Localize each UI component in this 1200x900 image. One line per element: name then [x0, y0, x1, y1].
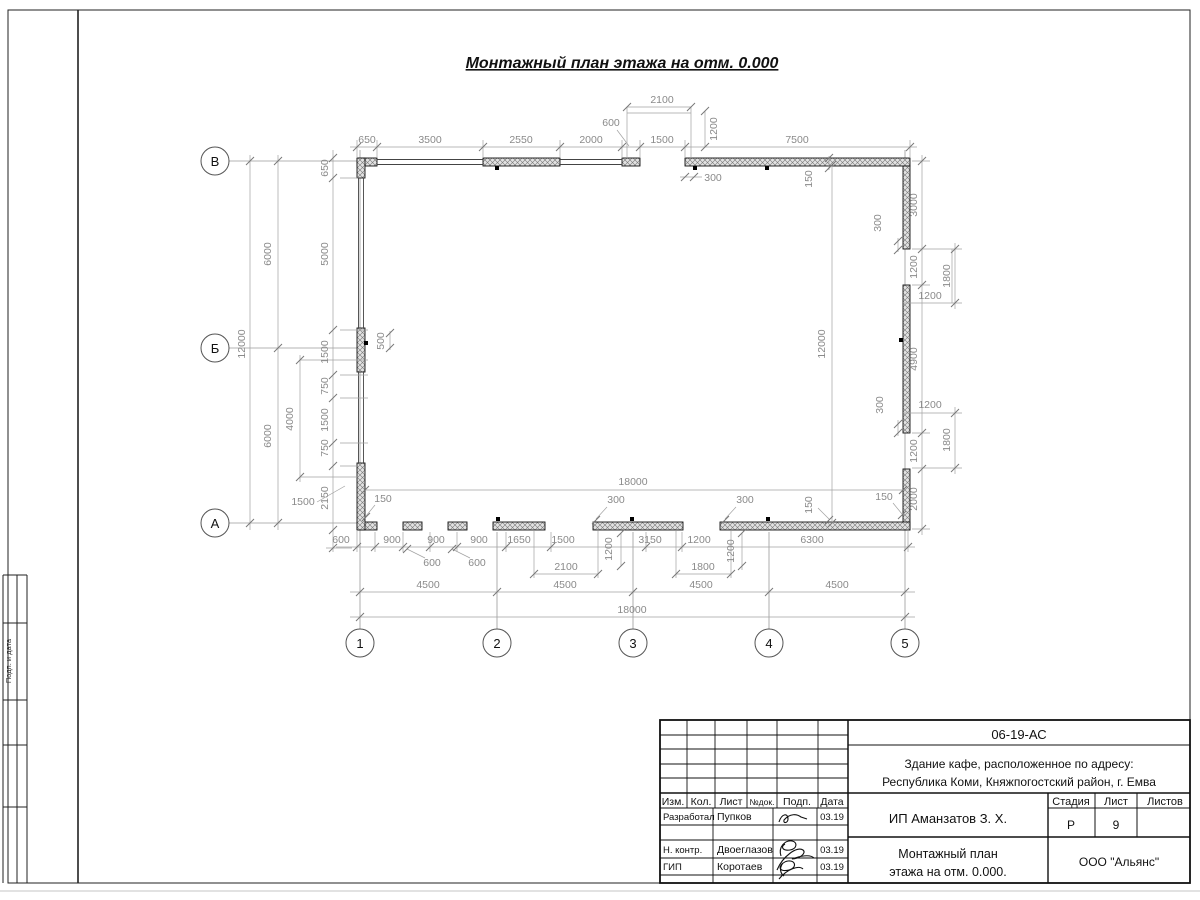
axis-row-label: В	[211, 154, 220, 169]
dim-label: 18000	[618, 476, 647, 488]
dim-label: 6000	[262, 424, 274, 448]
drawing-title: Монтажный план этажа на отм. 0.000	[466, 55, 779, 72]
dim-label: 150	[803, 496, 815, 514]
dim-label: 1500	[551, 534, 575, 546]
object-address-line2: Республика Коми, Княжпогостский район, г…	[882, 775, 1156, 789]
sheet-title-line2: этажа на отм. 0.000.	[889, 865, 1006, 879]
dim-label: 1500	[650, 134, 674, 146]
stage-label: Стадия	[1052, 796, 1090, 808]
dim-label: 3000	[908, 193, 920, 217]
dim-label: 300	[704, 172, 722, 184]
dim-label: 150	[875, 491, 893, 503]
dim-label: 600	[332, 534, 350, 546]
axis-col-label: 5	[901, 636, 908, 651]
dim-label: 18000	[617, 604, 646, 616]
signer-name: Двоеглазов	[717, 844, 773, 856]
sheet-label: Лист	[1104, 796, 1128, 808]
dim-label: 1200	[908, 439, 920, 463]
axis-row-label: Б	[211, 341, 220, 356]
signer-date: 03.19	[820, 862, 844, 873]
rev-header: №док.	[750, 797, 775, 807]
rev-header: Изм.	[662, 796, 685, 808]
dim-label: 4900	[908, 347, 920, 371]
dim-label: 5000	[319, 242, 331, 266]
dim-label: 600	[423, 557, 441, 569]
sheets-label: Листов	[1147, 796, 1183, 808]
dim-label: 6000	[262, 242, 274, 266]
dim-label: 900	[470, 534, 488, 546]
dim-label: 1800	[941, 264, 953, 288]
sheet-title-line1: Монтажный план	[898, 847, 998, 861]
title-block: 06-19-АС Здание кафе, расположенное по а…	[660, 720, 1190, 883]
dim-label: 2550	[509, 134, 533, 146]
dim-label: 1200	[725, 539, 737, 563]
dim-label: 1200	[908, 255, 920, 279]
dim-label: 1500	[319, 408, 331, 432]
doc-number: 06-19-АС	[991, 727, 1046, 742]
axis-col-label: 1	[356, 636, 363, 651]
signature-marks	[777, 815, 814, 879]
dim-label: 4500	[689, 579, 713, 591]
dim-label: 1800	[691, 561, 715, 573]
sheet-number: 9	[1113, 818, 1120, 832]
dim-label: 900	[383, 534, 401, 546]
dim-label: 2000	[579, 134, 603, 146]
dim-label: 150	[374, 493, 392, 505]
drawing-canvas: Подп. и дата Монтажный план этажа на отм…	[0, 0, 1200, 900]
rev-header: Подп.	[783, 796, 811, 808]
dim-label: 2150	[319, 486, 331, 510]
signer-date: 03.19	[820, 845, 844, 856]
dim-label: 7500	[785, 134, 809, 146]
dim-label: 4000	[284, 407, 296, 431]
dim-label: 2100	[650, 94, 674, 106]
rev-header: Кол.	[691, 796, 712, 808]
dim-label: 1200	[687, 534, 711, 546]
rev-header: Дата	[820, 796, 843, 808]
axis-col-label: 2	[493, 636, 500, 651]
dim-label: 650	[319, 159, 331, 177]
client-name: ИП Аманзатов З. Х.	[889, 811, 1007, 826]
axis-row-label: А	[211, 516, 220, 531]
company-name: ООО "Альянс"	[1079, 855, 1159, 869]
dim-label: 300	[607, 494, 625, 506]
dim-label: 300	[872, 214, 884, 232]
signer-role: ГИП	[663, 862, 682, 873]
signer-name: Пупков	[717, 811, 752, 823]
wall-window-lines	[359, 160, 623, 464]
dim-label: 1200	[708, 117, 720, 141]
dim-label: 1500	[291, 496, 315, 508]
dim-label: 600	[602, 117, 620, 129]
dim-label: 12000	[236, 329, 248, 358]
dim-label: 300	[874, 396, 886, 414]
stage-value: Р	[1067, 818, 1075, 832]
dim-label: 600	[468, 557, 486, 569]
dim-label: 750	[319, 439, 331, 457]
dimension-labels: 650 3500 2550 2000 1500 7500 600 2100 12…	[236, 94, 953, 616]
dim-label: 900	[427, 534, 445, 546]
signer-role: Разработал	[663, 812, 715, 823]
dim-label: 1650	[507, 534, 531, 546]
axis-col-label: 3	[629, 636, 636, 651]
signer-date: 03.19	[820, 812, 844, 823]
drawing-sheet: Подп. и дата Монтажный план этажа на отм…	[0, 0, 1200, 900]
dim-label: 650	[358, 134, 376, 146]
axis-col-label: 4	[765, 636, 772, 651]
dim-label: 1800	[941, 428, 953, 452]
dim-label: 6300	[800, 534, 824, 546]
dim-label: 1500	[319, 340, 331, 364]
signer-name: Коротаев	[717, 861, 763, 873]
dim-label: 3500	[418, 134, 442, 146]
object-address-line1: Здание кафе, расположенное по адресу:	[904, 757, 1133, 771]
signer-role: Н. контр.	[663, 845, 702, 856]
dim-label: 4500	[553, 579, 577, 591]
dim-label: 1200	[603, 537, 615, 561]
dim-label: 300	[736, 494, 754, 506]
dim-label: 1200	[918, 290, 942, 302]
dim-label: 500	[375, 332, 387, 350]
dim-label: 750	[319, 377, 331, 395]
frame-side-label: Подп. и дата	[4, 638, 13, 683]
dim-label: 150	[803, 170, 815, 188]
dim-label: 4500	[416, 579, 440, 591]
dim-label: 3150	[638, 534, 662, 546]
dim-label: 2000	[908, 487, 920, 511]
dim-label: 1200	[918, 399, 942, 411]
dim-label: 2100	[554, 561, 578, 573]
rev-header: Лист	[720, 796, 743, 808]
dim-label: 4500	[825, 579, 849, 591]
dim-label: 12000	[816, 329, 828, 358]
